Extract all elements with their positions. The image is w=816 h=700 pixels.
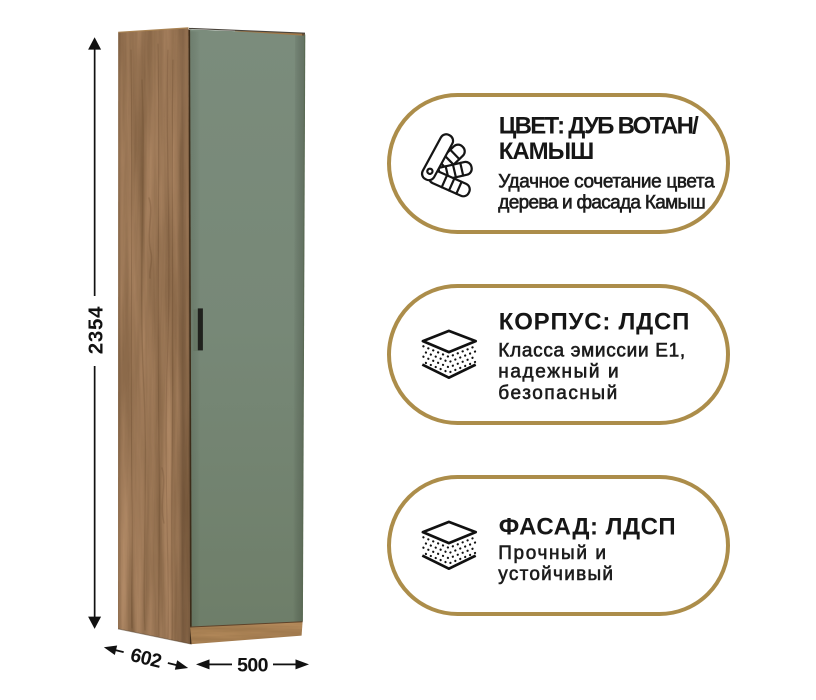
svg-text:602: 602 — [128, 644, 164, 673]
svg-text:2354: 2354 — [85, 306, 108, 354]
svg-text:500: 500 — [237, 654, 268, 676]
